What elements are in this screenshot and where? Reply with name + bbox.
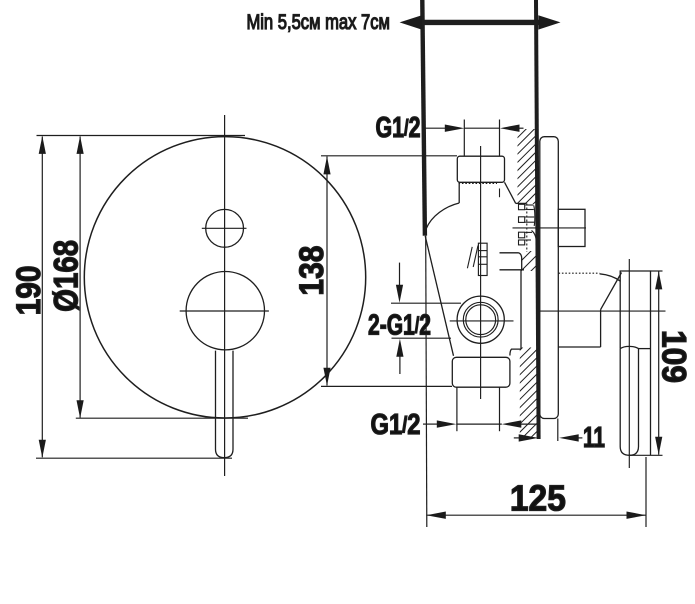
svg-text:11: 11 <box>583 422 605 454</box>
svg-text:G1/2: G1/2 <box>376 112 421 144</box>
svg-text:Min 5,5см max 7см: Min 5,5см max 7см <box>246 10 390 34</box>
svg-text:Ø168: Ø168 <box>48 240 86 312</box>
svg-text:109: 109 <box>655 330 693 383</box>
svg-text:190: 190 <box>10 265 48 315</box>
svg-text:G1/2: G1/2 <box>371 409 421 441</box>
svg-text:138: 138 <box>293 246 331 296</box>
svg-text:125: 125 <box>510 478 566 519</box>
svg-text:2-G1/2: 2-G1/2 <box>368 310 431 342</box>
